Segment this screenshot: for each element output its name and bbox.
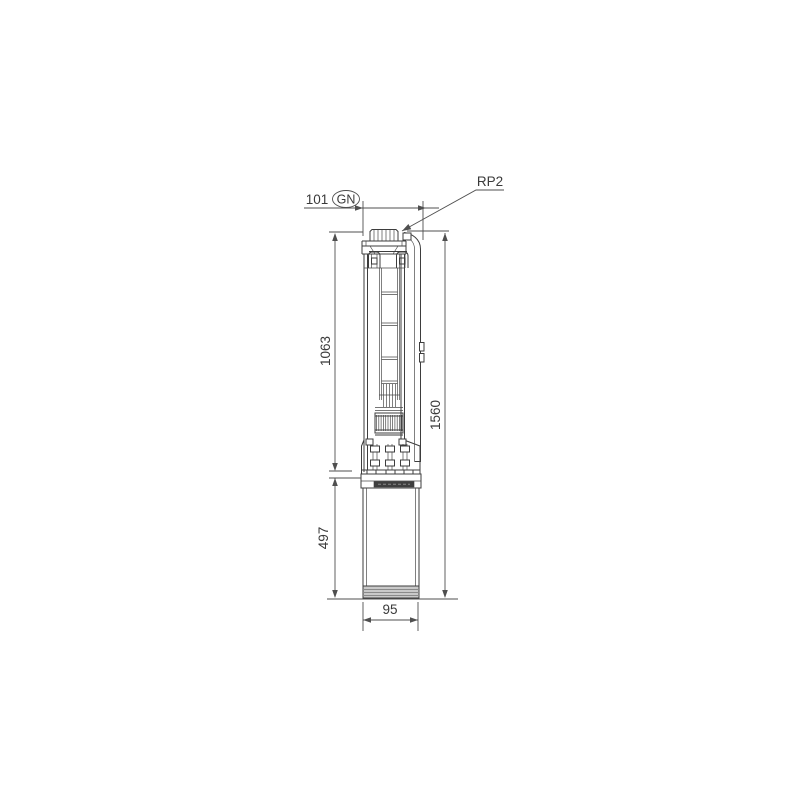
dim-label-497: 497 (316, 527, 331, 550)
dimension-pump-length: 1063 (318, 233, 352, 471)
dim-label-95: 95 (382, 602, 397, 617)
dim-label-rp2: RP2 (477, 174, 503, 189)
dim-label-1560: 1560 (428, 400, 443, 430)
pump-dimension-drawing: 101 GN RP2 1063 497 1560 95 (0, 0, 800, 800)
dimension-motor-diameter: 95 (363, 602, 418, 631)
dimension-motor-length: 497 (316, 478, 361, 598)
dim-label-gn: GN (337, 193, 356, 207)
cable-guard (403, 233, 424, 462)
suction-strainer (375, 413, 403, 435)
motor-top-plate (361, 474, 421, 488)
drawing-canvas: 101 GN RP2 1063 497 1560 95 (0, 0, 800, 800)
dimension-total-length: 1560 (428, 233, 448, 598)
dim-label-1063: 1063 (318, 336, 333, 366)
cable-clip (420, 354, 425, 363)
cable-clip (420, 343, 425, 352)
top-extension-lines (329, 231, 449, 232)
dim-label-101: 101 (306, 192, 329, 207)
motor-body (363, 488, 419, 598)
dimension-top-width: 101 GN (304, 191, 439, 241)
callout-rp2: RP2 (402, 174, 504, 231)
motor-coupling (362, 439, 421, 474)
discharge-thread (370, 230, 398, 242)
